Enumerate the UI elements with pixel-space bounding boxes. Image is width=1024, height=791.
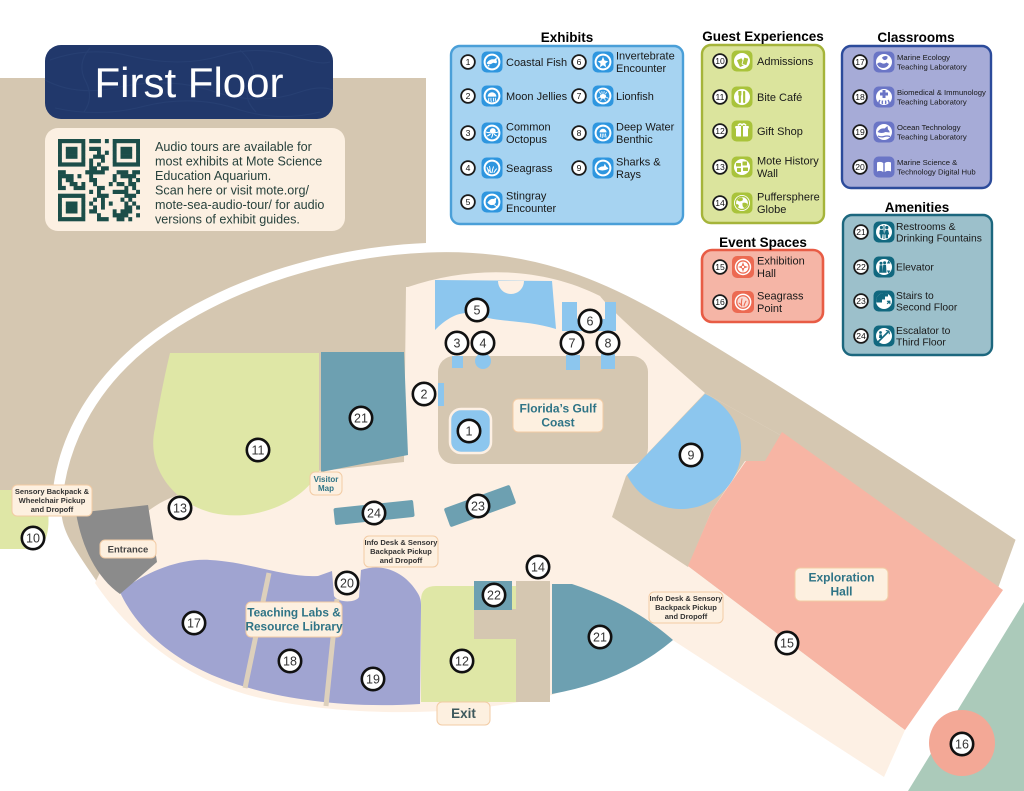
svg-text:11: 11 — [252, 444, 265, 458]
svg-text:11: 11 — [716, 92, 725, 102]
svg-text:Exhibits: Exhibits — [541, 30, 594, 45]
svg-text:Gift Shop: Gift Shop — [757, 126, 803, 138]
svg-text:15: 15 — [715, 262, 725, 272]
svg-text:18: 18 — [283, 655, 297, 669]
svg-text:21: 21 — [593, 631, 607, 645]
svg-text:16: 16 — [955, 738, 969, 752]
svg-text:6: 6 — [587, 315, 594, 329]
svg-text:15: 15 — [780, 637, 794, 651]
svg-text:Elevator: Elevator — [896, 263, 934, 274]
svg-text:18: 18 — [855, 92, 865, 102]
svg-text:9: 9 — [577, 163, 582, 173]
svg-text:Amenities: Amenities — [885, 200, 950, 215]
svg-text:7: 7 — [569, 337, 576, 351]
svg-text:23: 23 — [856, 296, 866, 306]
svg-text:1: 1 — [466, 425, 473, 439]
svg-text:17: 17 — [855, 57, 865, 67]
svg-text:3: 3 — [454, 337, 461, 351]
svg-text:7: 7 — [577, 91, 582, 101]
svg-text:Seagrass: Seagrass — [506, 163, 553, 175]
svg-text:5: 5 — [474, 304, 481, 318]
svg-text:22: 22 — [487, 589, 501, 603]
svg-text:24: 24 — [856, 331, 866, 341]
svg-text:23: 23 — [471, 500, 485, 514]
svg-text:13: 13 — [715, 162, 725, 172]
svg-text:20: 20 — [855, 162, 865, 172]
svg-text:22: 22 — [856, 262, 866, 272]
svg-text:Bite Café: Bite Café — [757, 92, 802, 104]
svg-text:19: 19 — [855, 127, 865, 137]
svg-text:InvertebrateEncounter: InvertebrateEncounter — [616, 51, 675, 76]
svg-text:20: 20 — [340, 577, 354, 591]
svg-text:2: 2 — [466, 91, 471, 101]
svg-text:3: 3 — [466, 128, 471, 138]
svg-text:9: 9 — [688, 449, 695, 463]
svg-text:1: 1 — [466, 57, 471, 67]
svg-text:13: 13 — [173, 502, 187, 516]
svg-text:Classrooms: Classrooms — [877, 30, 954, 45]
svg-text:Escalator toThird Floor: Escalator toThird Floor — [896, 326, 951, 349]
svg-text:19: 19 — [366, 673, 380, 687]
svg-text:21: 21 — [354, 412, 368, 426]
svg-text:Exit: Exit — [451, 706, 476, 721]
svg-text:5: 5 — [466, 197, 471, 207]
svg-text:Moon Jellies: Moon Jellies — [506, 91, 568, 103]
svg-text:17: 17 — [187, 617, 201, 631]
svg-text:2: 2 — [421, 388, 428, 402]
svg-text:14: 14 — [715, 198, 725, 208]
svg-text:Coastal Fish: Coastal Fish — [506, 57, 567, 69]
svg-text:10: 10 — [715, 56, 725, 66]
svg-text:Teaching Labs &Resource Librar: Teaching Labs &Resource Library — [245, 606, 342, 634]
svg-text:Ocean TechnologyTeaching Labor: Ocean TechnologyTeaching Laboratory — [897, 123, 967, 142]
svg-text:6: 6 — [577, 57, 582, 67]
svg-text:14: 14 — [531, 561, 545, 575]
svg-text:CommonOctopus: CommonOctopus — [506, 122, 551, 147]
svg-text:4: 4 — [466, 163, 471, 173]
svg-text:First Floor: First Floor — [95, 59, 284, 106]
svg-text:4: 4 — [480, 337, 487, 351]
svg-text:12: 12 — [715, 126, 725, 136]
svg-text:21: 21 — [856, 227, 866, 237]
svg-text:16: 16 — [715, 297, 725, 307]
svg-text:8: 8 — [577, 128, 582, 138]
svg-text:Event Spaces: Event Spaces — [719, 235, 807, 250]
svg-text:8: 8 — [605, 337, 612, 351]
svg-text:12: 12 — [455, 655, 469, 669]
svg-text:Guest Experiences: Guest Experiences — [702, 29, 824, 44]
svg-text:Entrance: Entrance — [108, 544, 149, 555]
svg-text:Lionfish: Lionfish — [616, 91, 654, 103]
svg-text:24: 24 — [367, 507, 381, 521]
svg-text:10: 10 — [26, 532, 40, 546]
svg-text:Admissions: Admissions — [757, 56, 814, 68]
